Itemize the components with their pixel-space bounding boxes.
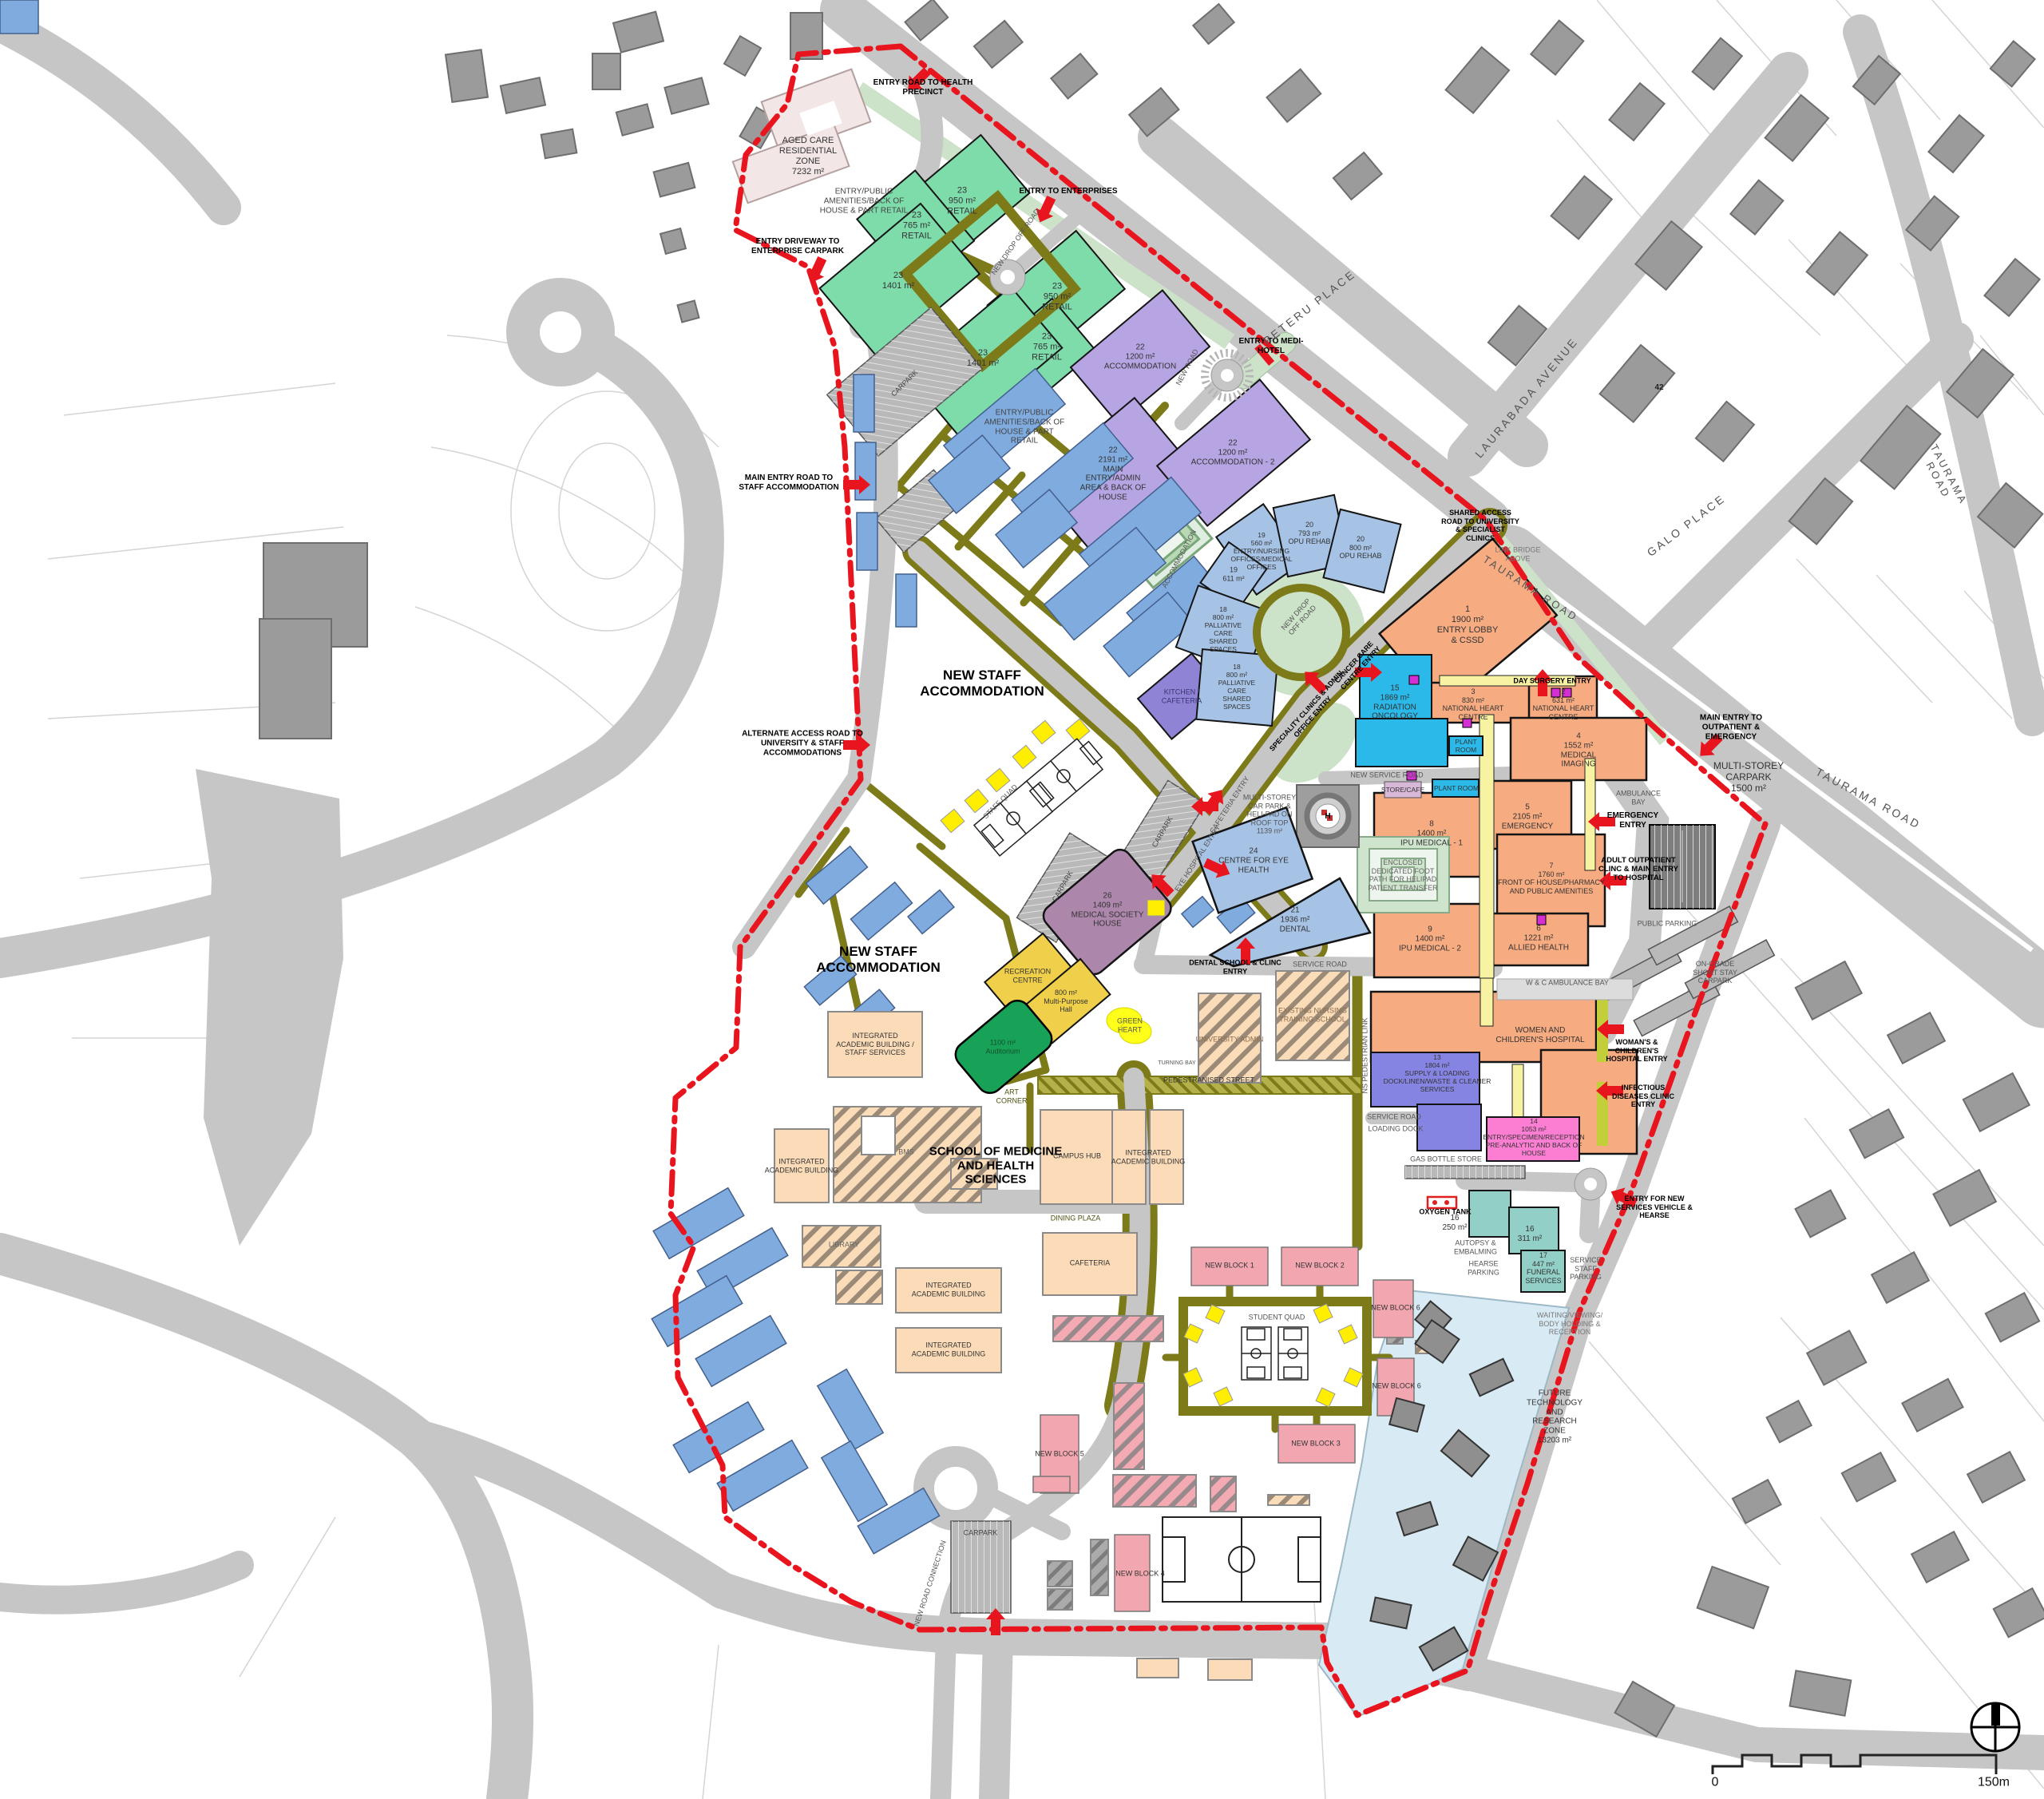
green-heart [1107,1008,1151,1044]
map-canvas [0,0,2044,1799]
multi-storey-carpark [1650,825,1715,909]
helipad-icon [1297,785,1359,847]
north-arrow-icon [1971,1703,2019,1751]
roundabout-island [1221,369,1234,382]
supply-loading-building [1371,1052,1481,1151]
pathology-building [1487,1117,1579,1161]
mortuary-buildings [1469,1191,1565,1292]
site-plan-map: AGED CARE RESIDENTIAL ZONE 7232 m²ENTRY/… [0,0,2044,1799]
oxygen-tank [1428,1197,1456,1208]
football-field [1163,1517,1321,1602]
wc-ambulance-bay [1497,979,1633,1000]
roundabout-island [1000,270,1015,284]
roundabout-island [1584,1178,1597,1191]
helipad-courtyard [1357,837,1449,913]
cul-de-sac-island [540,311,581,353]
central-green [1277,608,1325,656]
paved-area [196,769,343,1246]
store-cafe-building [1384,782,1421,798]
